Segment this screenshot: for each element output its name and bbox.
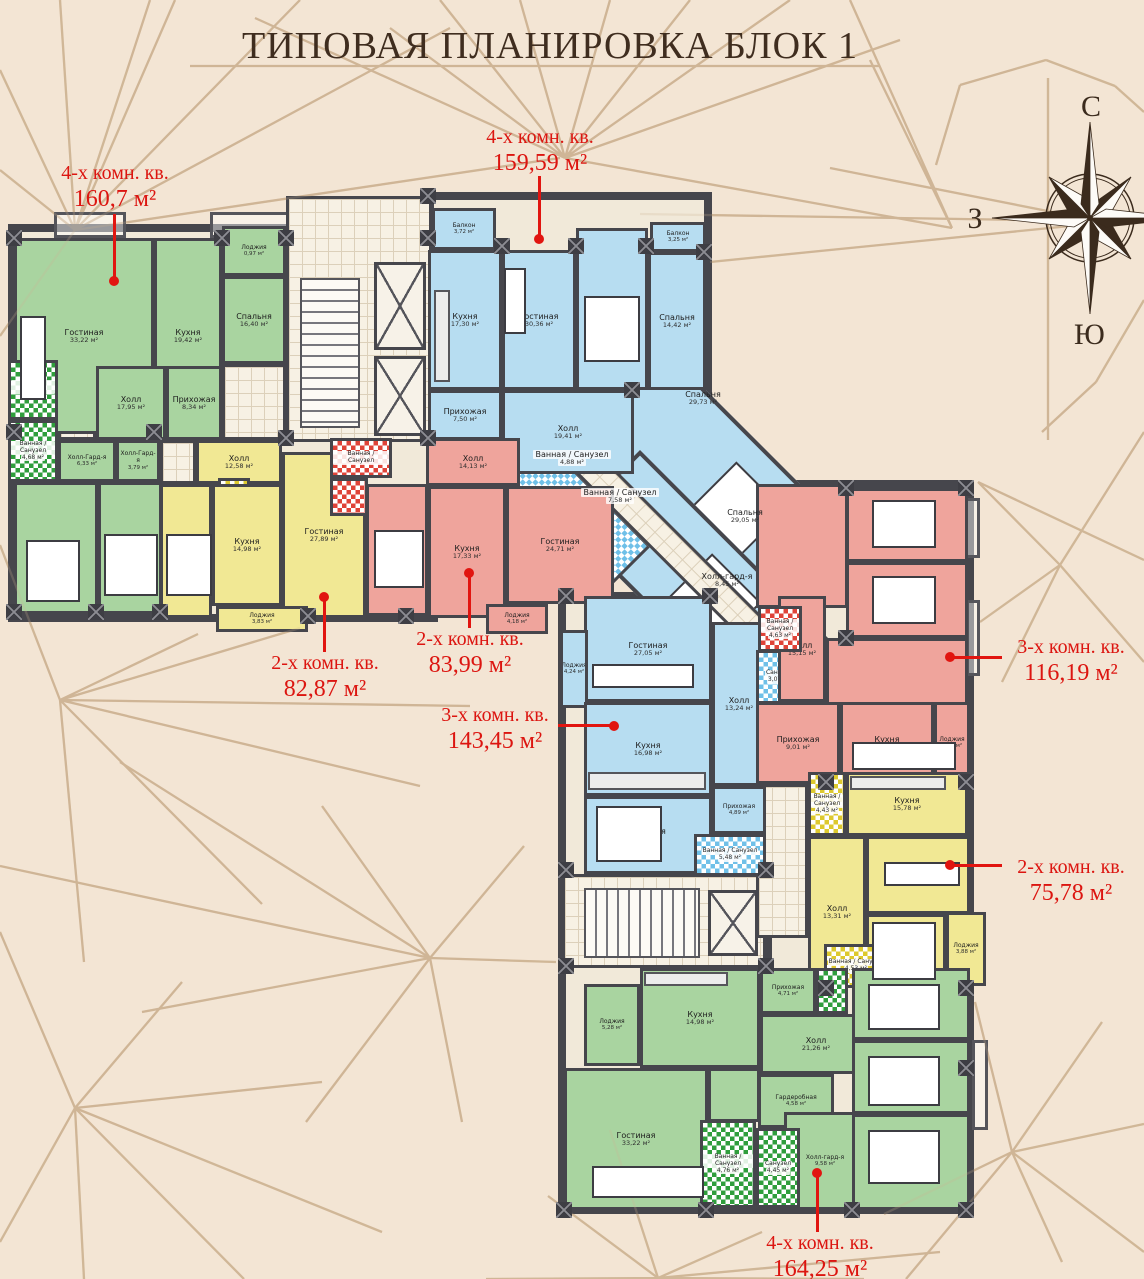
furniture-bed [868, 1130, 940, 1184]
furniture-bed [596, 806, 662, 862]
common-area [160, 440, 196, 484]
room-vestibule [756, 484, 848, 608]
balcony-outline [966, 600, 980, 676]
room-bedroom: Спальня16,40 м² [222, 276, 286, 364]
room-bathroom: Ванная / Санузел [330, 438, 392, 478]
room-hall-wardrobe: Холл-гард-я8,45 м² [672, 572, 782, 588]
room-entry: Прихожая4,71 м² [760, 968, 816, 1014]
wall-cap [420, 188, 436, 204]
wall-cap [638, 238, 654, 254]
annotation-dot [534, 234, 544, 244]
floor-plan-page: { "title": "ТИПОВАЯ ПЛАНИРОВКА БЛОК 1", … [0, 0, 1144, 1279]
wall-cap [844, 1202, 860, 1218]
wall-cap [152, 604, 168, 620]
common-area [222, 364, 286, 440]
annotation-apt-164: 4-х комн. кв.164,25 м² [735, 1232, 905, 1279]
annotation-dot [945, 652, 955, 662]
wall-cap [558, 862, 574, 878]
wall-cap [958, 1202, 974, 1218]
annotation-line [558, 724, 612, 727]
annotation-dot [609, 721, 619, 731]
room-balcony: Балкон3,72 м² [432, 208, 496, 250]
furniture-bed [872, 576, 936, 624]
annotation-line [952, 864, 1002, 867]
annotation-dot [945, 860, 955, 870]
furniture-bed [872, 922, 936, 980]
wall-cap [624, 382, 640, 398]
wall-cap [278, 230, 294, 246]
compass-south-label: Ю [1074, 318, 1104, 352]
room-bathroom: Ванная / Санузел5,48 м² [694, 834, 766, 876]
wall-cap [758, 862, 774, 878]
wall-cap [568, 238, 584, 254]
page-title: ТИПОВАЯ ПЛАНИРОВКА БЛОК 1 [150, 24, 950, 68]
wall-cap [958, 1060, 974, 1076]
furniture-sofa [592, 664, 694, 688]
kitchen-counter [850, 776, 946, 790]
room-corridor [708, 1068, 760, 1122]
room-bathroom: Ванная / Санузел7,58 м² [576, 488, 664, 504]
wall-cap [838, 630, 854, 646]
wall-cap [556, 1202, 572, 1218]
stairs [300, 278, 360, 428]
kitchen-counter [588, 772, 706, 790]
furniture-bed [868, 1056, 940, 1106]
annotation-dot [109, 276, 119, 286]
room-bathroom: Санузел4,45 м² [756, 1128, 800, 1208]
wall-cap [146, 424, 162, 440]
annotation-apt-159: 4-х комн. кв.159,59 м² [455, 126, 625, 178]
room-hall-wardrobe: Холл-Гард-я6,33 м² [58, 440, 116, 482]
annotation-line [468, 576, 471, 628]
furniture-sofa [852, 742, 956, 770]
room-entry: Прихожая4,89 м² [712, 786, 766, 834]
furniture-bed [872, 500, 936, 548]
wall-cap [696, 244, 712, 260]
annotation-apt-116: 3-х комн. кв.116,19 м² [1002, 636, 1140, 688]
room-loggia: Лоджия4,24 м² [560, 630, 588, 708]
elevator [374, 262, 426, 350]
wall-cap [398, 608, 414, 624]
room-kitchen: Кухня17,33 м² [428, 486, 506, 618]
furniture-bed [374, 530, 424, 588]
room-entry: Прихожая8,34 м² [166, 366, 222, 440]
wall-cap [818, 980, 834, 996]
wall-cap [838, 480, 854, 496]
room-bathroom: Ванная / Санузел4,88 м² [530, 450, 614, 466]
wall-cap [558, 958, 574, 974]
annotation-line [113, 214, 116, 278]
wall-cap [558, 588, 574, 604]
annotation-apt-160: 4-х комн. кв.160,7 м² [30, 162, 200, 214]
wall-cap [214, 230, 230, 246]
kitchen-counter [434, 290, 450, 382]
compass-west-label: З [960, 202, 990, 236]
wall-cap [6, 604, 22, 620]
room-bedroom: Спальня14,42 м² [648, 252, 706, 390]
wall-cap [278, 430, 294, 446]
annotation-line [323, 600, 326, 652]
room-bathroom [330, 478, 368, 516]
room-bathroom: Ванная / Санузел4,63 м² [758, 606, 802, 652]
annotation-line [816, 1174, 819, 1232]
room-bathroom: Ванная / Санузел4,76 м² [700, 1120, 756, 1208]
room-loggia: Лоджия3,83 м² [216, 606, 308, 632]
room-bedroom: Спальня29,73 м² [648, 390, 758, 406]
wall-cap [958, 980, 974, 996]
room-entry: Прихожая7,50 м² [428, 390, 502, 440]
room-kitchen: Кухня14,98 м² [212, 484, 282, 606]
furniture-sofa [20, 316, 46, 400]
wall-cap [958, 480, 974, 496]
room-hall-wardrobe: Холл-Гард-я3,79 м² [116, 440, 160, 482]
furniture-bed [868, 984, 940, 1030]
elevator [708, 890, 758, 956]
annotation-dot [319, 592, 329, 602]
furniture-sofa [504, 268, 526, 334]
furniture-sofa [592, 1166, 704, 1198]
balcony-outline [972, 1040, 988, 1130]
wall-cap [6, 230, 22, 246]
furniture-bed [26, 540, 80, 602]
annotation-dot [812, 1168, 822, 1178]
annotation-apt-83: 2-х комн. кв.83,99 м² [385, 628, 555, 680]
elevator [374, 356, 426, 436]
wall-cap [818, 774, 834, 790]
annotation-line [952, 656, 1002, 659]
furniture-bed [104, 534, 158, 596]
room-loggia: Лоджия5,28 м² [584, 984, 640, 1066]
wall-cap [420, 230, 436, 246]
furniture-bed [584, 296, 640, 362]
wall-cap [6, 424, 22, 440]
wall-cap [420, 430, 436, 446]
annotation-apt-75: 2-х комн. кв.75,78 м² [1002, 856, 1140, 908]
wall-cap [958, 774, 974, 790]
wall-cap [300, 608, 316, 624]
compass-north-label: С [1076, 90, 1106, 124]
room-hall: Холл14,13 м² [426, 438, 520, 486]
room-bedroom: Спальня29,05 м² [690, 508, 800, 524]
wall-cap [702, 588, 718, 604]
wall-cap [758, 958, 774, 974]
wall-cap [698, 1202, 714, 1218]
kitchen-counter [644, 972, 728, 986]
annotation-line [538, 176, 541, 236]
wall-cap [494, 238, 510, 254]
furniture-bed [166, 534, 212, 596]
wall-cap [88, 604, 104, 620]
annotation-dot [464, 568, 474, 578]
room-loggia: Лоджия0,97 м² [222, 226, 286, 276]
annotation-apt-143: 3-х комн. кв.143,45 м² [425, 704, 565, 756]
stairs [584, 888, 700, 958]
